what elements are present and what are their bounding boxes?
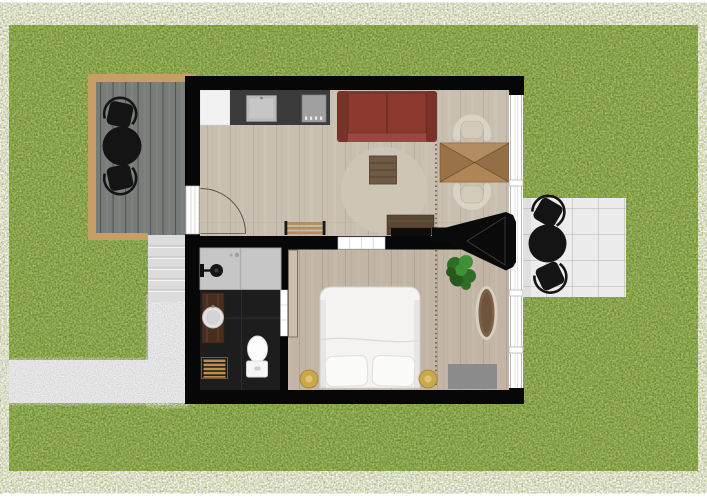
entry-steps [148,235,186,302]
kitchen-sink [247,96,277,122]
wall-left-lower [185,234,200,404]
window-mullion-2 [509,290,523,296]
sofa-armrest-right [426,91,437,142]
bathroom-door [281,290,288,336]
basin-tap [212,305,215,308]
wall-middle [200,236,465,250]
deck-table [103,127,142,166]
sofa-seat-edge [348,133,426,142]
wood-vanity [202,293,224,343]
toilet-flush-button [255,367,261,371]
floor-plan-canvas [0,0,707,500]
gray-floor-mat [448,364,497,389]
sliding-door [338,237,385,249]
tv [391,228,431,236]
sofa-armrest-left [337,91,348,142]
deck-border-top [88,74,196,82]
walk-in-shower [200,248,281,290]
cooktop [302,95,326,122]
bath-mat [202,358,228,379]
wall-left-upper [185,76,200,186]
deck-border-bottom [88,233,148,240]
dining-table [440,143,509,182]
tall-cabinet [289,250,298,337]
bedside-lamp-left [300,370,318,388]
floor-plan-screenshot [0,0,707,500]
double-bed [320,287,420,388]
wood-deck [88,74,196,240]
wall-top [185,76,524,90]
pillow-right [372,355,415,386]
deck-border-left [88,74,96,240]
refrigerator [200,90,230,125]
window-mullion-3 [509,347,523,353]
window-mullion-1 [509,180,523,186]
pillow-left [325,355,368,386]
patio-table [529,225,567,263]
wall-bottom [185,390,524,404]
shower-drain [235,253,239,257]
coffee-table [370,156,397,184]
wood-bench [285,221,326,235]
wall-right-lower [509,388,524,404]
oval-rug [476,286,498,340]
bedside-lamp-right [419,370,437,388]
wall-right-upper [509,76,524,95]
toilet [247,336,268,377]
red-sofa [337,91,437,142]
